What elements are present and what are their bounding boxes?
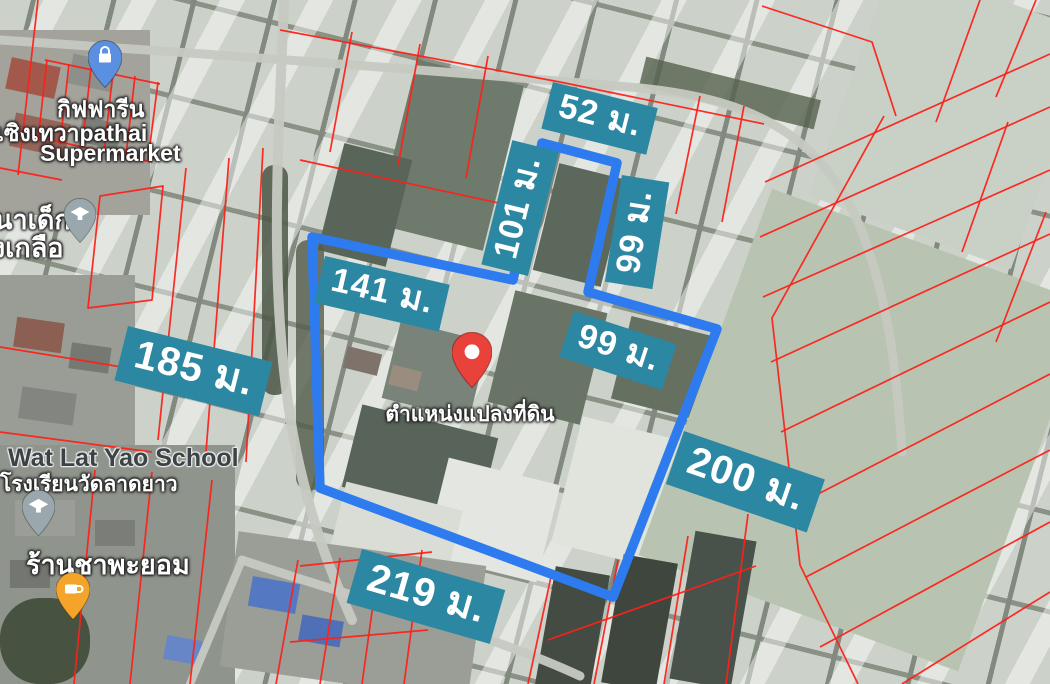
road <box>190 560 242 684</box>
tea-shop-label: ร้านชาพะยอม <box>26 543 190 586</box>
supermarket-pin-icon[interactable] <box>88 40 122 88</box>
road <box>640 88 902 452</box>
tea-shop-pin-icon[interactable] <box>56 572 90 620</box>
school-pin-icon[interactable] <box>22 490 55 536</box>
nursery-label-line2: งเกลือ <box>0 226 64 269</box>
nursery-school-pin-icon[interactable] <box>64 198 96 243</box>
property-marker-pin-icon[interactable] <box>452 332 492 388</box>
map-canvas: 52 ม. 101 ม. 99 ม. 141 ม. 185 ม. 99 ม. 2… <box>0 0 1050 684</box>
property-marker-label: ตำแหน่งแปลงที่ดิน <box>360 398 580 431</box>
supermarket-label-line3: Supermarket <box>40 140 181 167</box>
